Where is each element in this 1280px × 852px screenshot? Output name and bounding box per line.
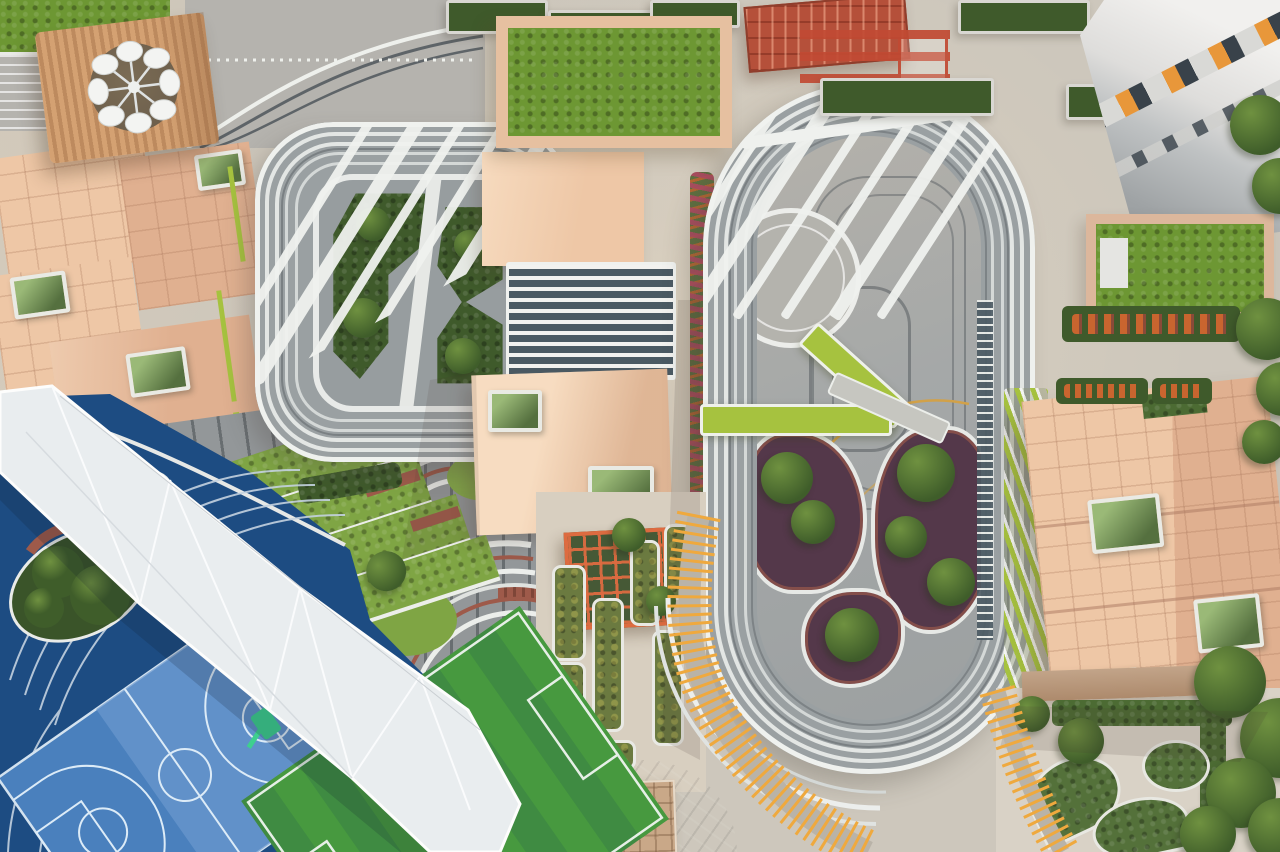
walkway-under-canopy xyxy=(997,690,1062,852)
aerial-photo xyxy=(0,0,1280,852)
yellow-slat-canopies xyxy=(0,0,1280,852)
walkway-under-canopy xyxy=(689,515,868,852)
